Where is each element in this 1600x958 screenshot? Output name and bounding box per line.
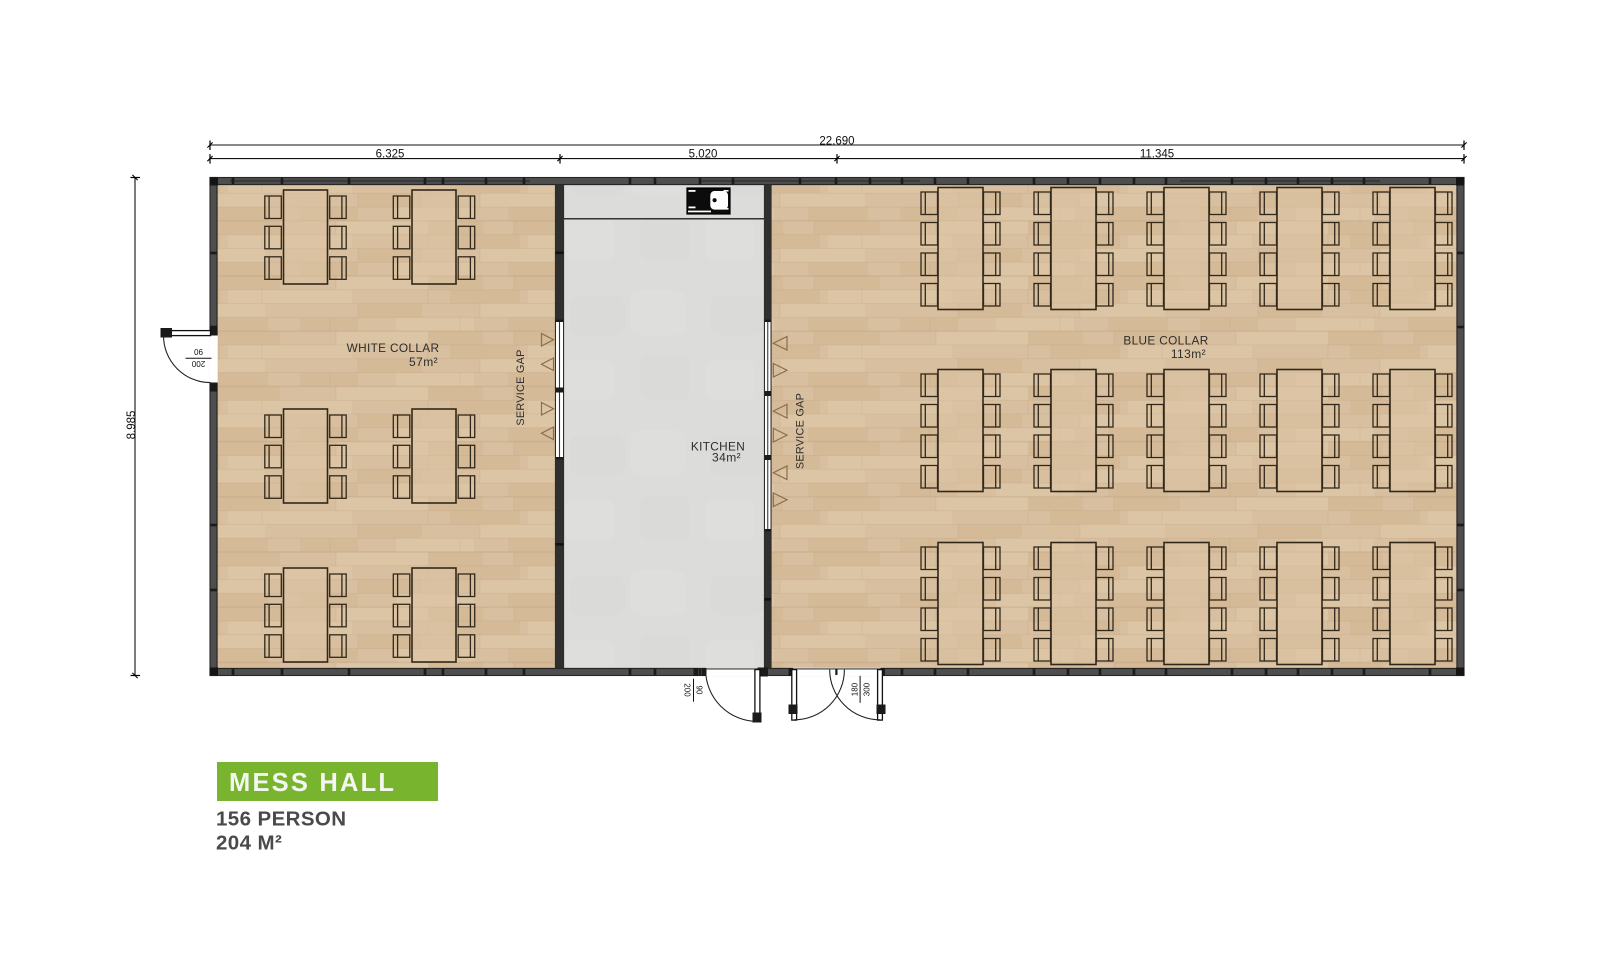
svg-text:SERVICE GAP: SERVICE GAP [515,349,527,425]
svg-text:6.325: 6.325 [376,149,405,161]
svg-text:300: 300 [862,682,871,696]
svg-text:5.020: 5.020 [689,149,718,161]
svg-text:57m²: 57m² [409,355,438,369]
svg-text:180: 180 [850,682,859,696]
svg-text:11.345: 11.345 [1140,149,1174,161]
svg-text:200: 200 [682,683,691,697]
svg-text:22.690: 22.690 [819,136,854,148]
svg-text:113m²: 113m² [1171,347,1206,361]
svg-text:8.985: 8.985 [126,411,138,440]
svg-text:156 PERSON: 156 PERSON [216,808,346,831]
svg-text:SERVICE GAP: SERVICE GAP [795,393,807,469]
svg-text:WHITE COLLAR: WHITE COLLAR [347,341,440,355]
svg-text:90: 90 [694,686,703,695]
svg-text:34m²: 34m² [712,451,741,465]
svg-text:MESS HALL: MESS HALL [229,769,396,797]
svg-text:204 M²: 204 M² [216,832,282,855]
svg-text:90: 90 [194,347,203,356]
svg-text:200: 200 [191,359,205,368]
svg-text:BLUE COLLAR: BLUE COLLAR [1123,334,1208,348]
